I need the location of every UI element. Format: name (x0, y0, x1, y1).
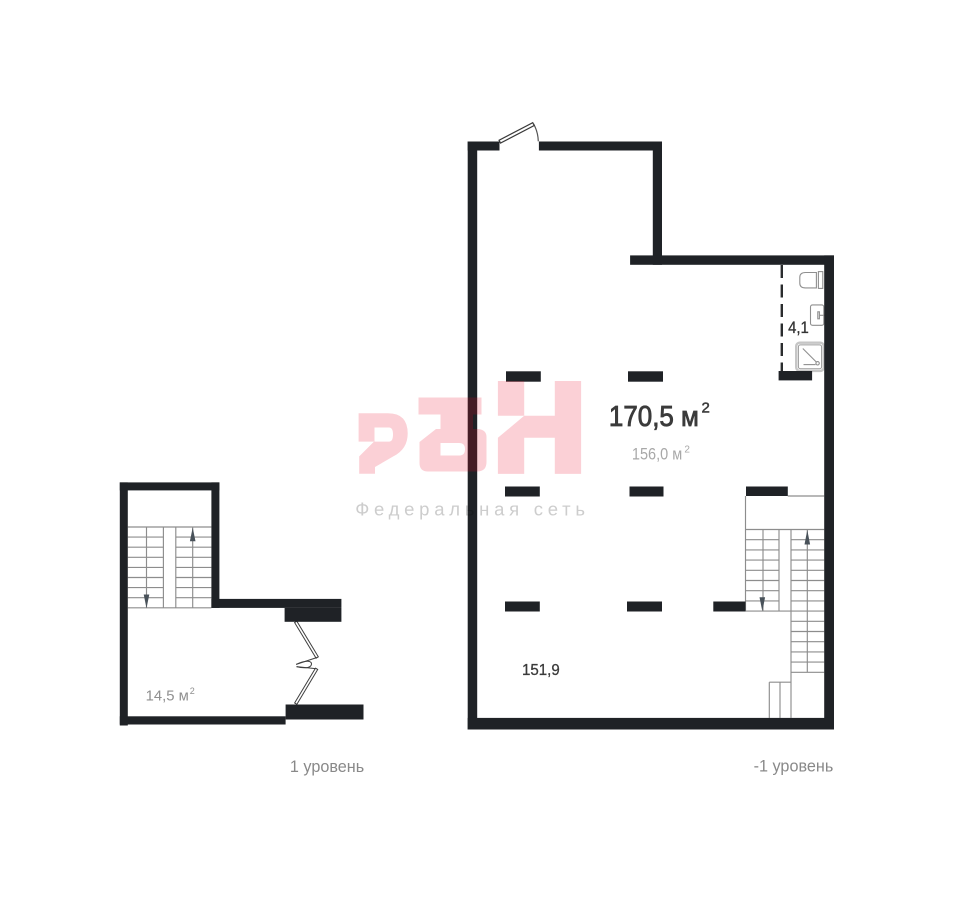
svg-text:2: 2 (190, 686, 195, 696)
svg-text:170,5 м: 170,5 м (609, 401, 699, 433)
svg-text:14,5 м: 14,5 м (146, 688, 189, 705)
svg-text:Федеральная сеть: Федеральная сеть (355, 499, 585, 520)
svg-text:4,1: 4,1 (788, 319, 809, 337)
svg-text:2: 2 (702, 400, 710, 417)
svg-text:-1 уровень: -1 уровень (754, 757, 834, 775)
svg-text:1 уровень: 1 уровень (290, 758, 364, 776)
svg-text:156,0 м: 156,0 м (632, 445, 682, 463)
svg-text:2: 2 (684, 445, 690, 456)
svg-text:151,9: 151,9 (522, 662, 560, 679)
